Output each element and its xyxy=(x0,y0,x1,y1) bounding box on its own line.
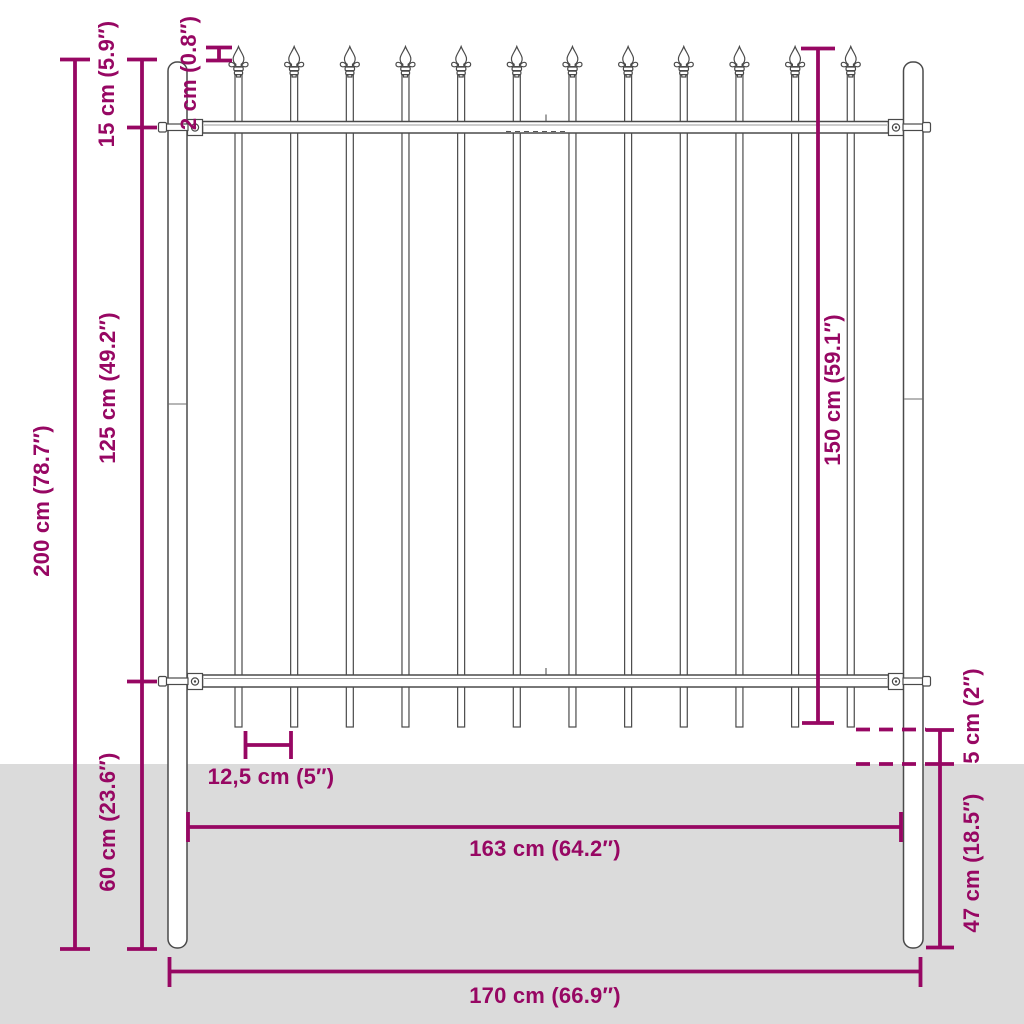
spear-finial-icon xyxy=(507,47,526,78)
spear-finial-icon xyxy=(285,47,304,78)
fence-bar xyxy=(513,75,520,727)
fence-bar xyxy=(847,75,854,727)
dim-label-bar-top: 2 cm (0.8″) xyxy=(176,0,202,223)
dim-label-post-below-ground: 47 cm (18.5″) xyxy=(959,713,985,1013)
fence-diagram-canvas xyxy=(0,0,1024,1024)
dim-label-total-height: 200 cm (78.7″) xyxy=(29,351,55,651)
spear-finial-icon xyxy=(340,47,359,78)
fence-bar xyxy=(346,75,353,727)
spear-finial-icon xyxy=(619,47,638,78)
spear-finial-icon xyxy=(452,47,471,78)
spear-finial-icon xyxy=(786,47,805,78)
dim-label-panel-height: 125 cm (49.2″) xyxy=(95,238,121,538)
dim-label-top-offset: 15 cm (5.9″) xyxy=(94,0,120,234)
fence-bar xyxy=(569,75,576,727)
fence-bar xyxy=(736,75,743,727)
dim-label-inner-width: 163 cm (64.2″) xyxy=(415,836,675,862)
dim-label-ground-depth: 60 cm (23.6″) xyxy=(95,672,121,972)
spear-finial-icon xyxy=(841,47,860,78)
fence-bar xyxy=(235,75,242,727)
fence-dimension-diagram: 200 cm (78.7″) 15 cm (5.9″) 125 cm (49.2… xyxy=(0,0,1024,1024)
fence-bar xyxy=(458,75,465,727)
dim-label-total-width: 170 cm (66.9″) xyxy=(415,983,675,1009)
spear-finial-icon xyxy=(396,47,415,78)
dim-label-bar-height: 150 cm (59.1″) xyxy=(820,240,846,540)
fence-bar xyxy=(680,75,687,727)
spear-finial-icon xyxy=(730,47,749,78)
spear-finial-icon xyxy=(674,47,693,78)
fence-bar xyxy=(291,75,298,727)
fence-bars xyxy=(229,47,860,728)
fence-bar xyxy=(402,75,409,727)
fence-bar xyxy=(792,75,799,727)
fence-bar xyxy=(625,75,632,727)
dim-label-bar-spacing: 12,5 cm (5″) xyxy=(141,764,401,790)
spear-finial-icon xyxy=(563,47,582,78)
